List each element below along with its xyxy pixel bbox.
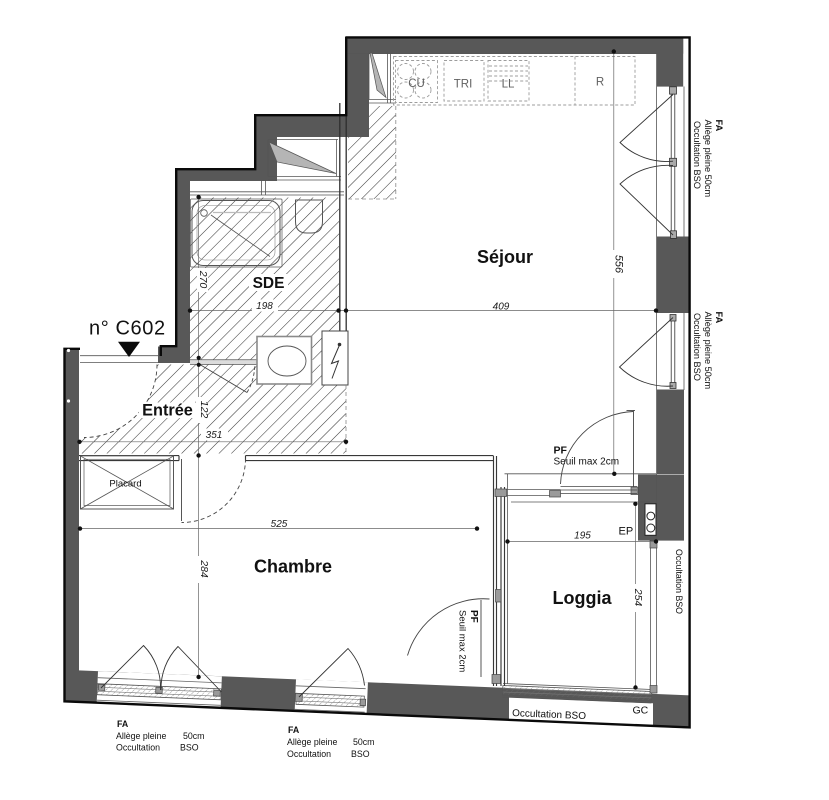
svg-text:Occultation BSO: Occultation BSO — [692, 121, 702, 189]
svg-text:284: 284 — [198, 559, 210, 578]
svg-text:LL: LL — [502, 79, 515, 91]
svg-text:FA: FA — [117, 719, 129, 729]
svg-text:R: R — [596, 77, 604, 89]
svg-text:Allège pleine 50cm: Allège pleine 50cm — [703, 312, 713, 390]
svg-text:195: 195 — [574, 531, 591, 542]
svg-text:Occultation: Occultation — [287, 749, 331, 759]
svg-text:n° C602: n° C602 — [89, 318, 166, 340]
svg-text:351: 351 — [206, 430, 223, 441]
svg-text:Placard: Placard — [109, 479, 141, 490]
svg-text:254: 254 — [632, 588, 644, 607]
svg-text:Occultation BSO: Occultation BSO — [692, 313, 702, 381]
svg-text:50cm: 50cm — [183, 731, 205, 741]
svg-text:Allège pleine: Allège pleine — [116, 731, 166, 741]
svg-text:Seuil max 2cm: Seuil max 2cm — [554, 457, 620, 468]
svg-text:Loggia: Loggia — [553, 588, 613, 608]
svg-text:Allège pleine: Allège pleine — [287, 737, 337, 747]
svg-text:BSO: BSO — [180, 743, 199, 753]
svg-text:Entrée: Entrée — [142, 402, 193, 420]
svg-text:198: 198 — [256, 301, 273, 312]
svg-text:PF: PF — [468, 610, 479, 623]
svg-text:556: 556 — [613, 255, 625, 274]
svg-text:EP: EP — [619, 526, 634, 538]
svg-text:Allège pleine 50cm: Allège pleine 50cm — [703, 120, 713, 198]
svg-text:Séjour: Séjour — [477, 247, 533, 267]
svg-text:525: 525 — [271, 519, 288, 530]
svg-text:Occultation BSO: Occultation BSO — [674, 549, 684, 614]
svg-text:SDE: SDE — [253, 275, 285, 292]
svg-text:Seuil max 2cm: Seuil max 2cm — [457, 610, 468, 672]
svg-text:270: 270 — [197, 270, 209, 289]
svg-text:Occultation: Occultation — [116, 743, 160, 753]
svg-text:TRI: TRI — [454, 79, 473, 91]
svg-text:FA: FA — [714, 120, 724, 132]
svg-text:BSO: BSO — [351, 749, 370, 759]
svg-text:CU: CU — [408, 78, 425, 90]
svg-text:FA: FA — [714, 312, 724, 324]
svg-text:GC: GC — [633, 705, 649, 717]
svg-text:FA: FA — [288, 725, 300, 735]
svg-text:409: 409 — [493, 301, 510, 312]
svg-text:50cm: 50cm — [353, 737, 375, 747]
svg-text:PF: PF — [554, 445, 568, 457]
svg-text:Chambre: Chambre — [254, 557, 332, 577]
svg-text:122: 122 — [198, 401, 210, 419]
